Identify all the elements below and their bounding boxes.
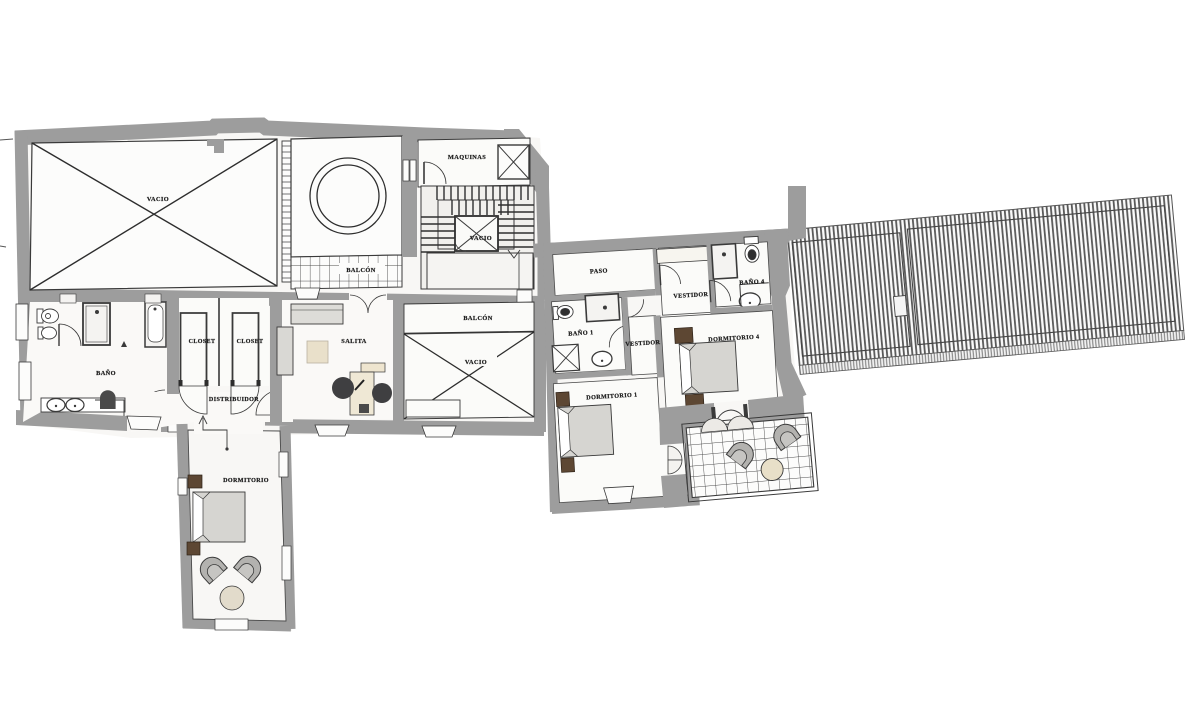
svg-text:BALCÓN: BALCÓN — [346, 266, 375, 274]
svg-text:BALCÓN: BALCÓN — [463, 314, 492, 322]
svg-text:BAÑO 4: BAÑO 4 — [739, 277, 765, 287]
svg-text:VACIO: VACIO — [465, 359, 487, 366]
svg-text:BAÑO 1: BAÑO 1 — [568, 328, 594, 337]
svg-text:VACIO: VACIO — [470, 235, 492, 242]
svg-text:SALITA: SALITA — [341, 338, 366, 345]
svg-text:BAÑO: BAÑO — [96, 369, 116, 377]
svg-text:VACIO: VACIO — [147, 196, 169, 203]
svg-text:DISTRIBUIDOR: DISTRIBUIDOR — [209, 397, 259, 403]
svg-text:PASO: PASO — [590, 267, 608, 275]
svg-text:CLOSET: CLOSET — [237, 339, 264, 345]
svg-text:CLOSET: CLOSET — [189, 339, 216, 345]
svg-text:DORMITORIO: DORMITORIO — [223, 478, 269, 484]
svg-text:MAQUINAS: MAQUINAS — [448, 154, 486, 161]
